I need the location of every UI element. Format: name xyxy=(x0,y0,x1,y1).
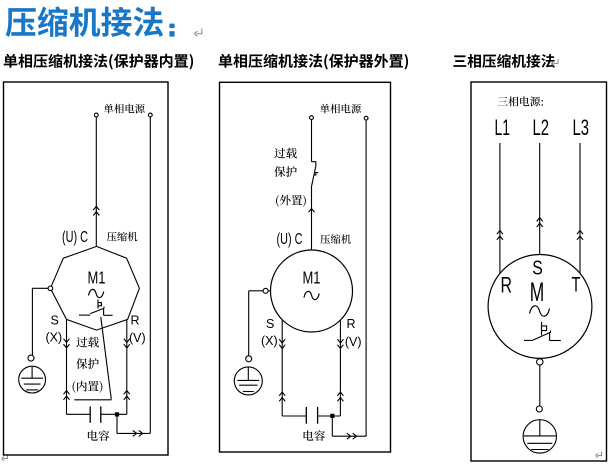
svg-text:S: S xyxy=(51,314,59,328)
svg-text:L2: L2 xyxy=(533,115,550,140)
svg-text:(X): (X) xyxy=(261,334,278,348)
svg-text:T: T xyxy=(572,274,581,297)
svg-text:(V): (V) xyxy=(345,335,362,349)
svg-text:R: R xyxy=(501,273,513,298)
svg-text:(X): (X) xyxy=(46,331,63,345)
svg-text:(U) C: (U) C xyxy=(277,231,303,248)
svg-text:M1: M1 xyxy=(88,268,106,288)
svg-text:R: R xyxy=(131,314,140,328)
svg-text:(U) C: (U) C xyxy=(62,229,88,246)
svg-text:(V): (V) xyxy=(129,331,146,345)
svg-text:L3: L3 xyxy=(573,115,590,140)
svg-text:M1: M1 xyxy=(303,268,321,288)
svg-text:R: R xyxy=(347,317,356,331)
svg-text:S: S xyxy=(266,317,274,331)
svg-text:L1: L1 xyxy=(495,115,511,140)
svg-text:M: M xyxy=(530,277,545,307)
